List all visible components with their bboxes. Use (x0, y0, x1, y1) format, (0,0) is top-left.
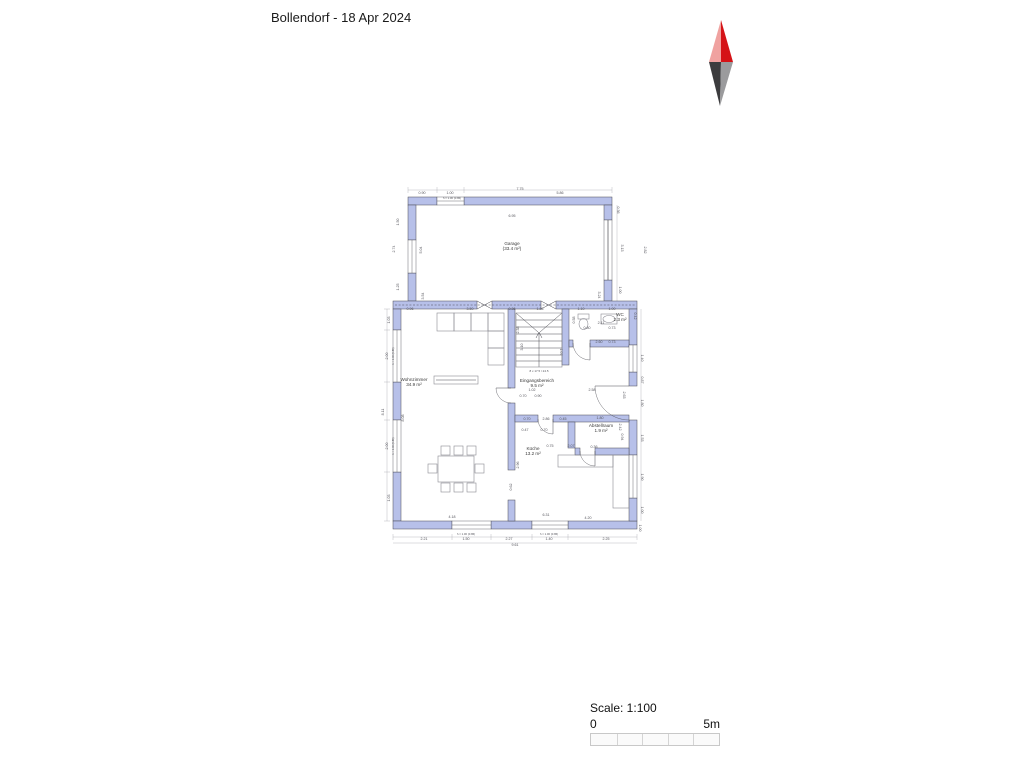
dimension-label: 0.47 (522, 428, 529, 432)
north-arrow-nw-blade (709, 20, 721, 62)
furniture (467, 483, 476, 492)
scale-start: 0 (590, 717, 597, 731)
floor-plan: Garage(33.4 m²)Wohnzimmer34.9 m²Eingangs… (0, 0, 1024, 768)
wall (464, 197, 612, 205)
wall (408, 197, 437, 205)
plan-line (540, 313, 562, 332)
plan-line (539, 332, 542, 338)
scale-numbers: 0 5m (590, 717, 720, 731)
furniture (441, 446, 450, 455)
dimension-label: 0.36 (591, 445, 598, 449)
dimension-label: 2.63 (622, 392, 626, 399)
dimension-label: 1.80 (597, 416, 604, 420)
dimension-label: 6.31 (543, 513, 550, 517)
scale-end: 5m (703, 717, 720, 731)
dimension-label: 1.90 (640, 474, 644, 481)
dimension-label: 1.25 (396, 284, 400, 291)
dimension-label: 2.00 (385, 353, 389, 360)
dimension-label: 0.94 (620, 434, 624, 441)
dimension-label: 9.61 (512, 543, 519, 547)
dimension-label: 5.04 (419, 247, 423, 254)
door-swing-arc (496, 388, 511, 403)
dimension-label: 8.11 (381, 409, 385, 416)
dimension-label: 0.96 (407, 307, 414, 311)
dimension-label: 2.21 (421, 537, 428, 541)
dimension-label: 2.60 (596, 340, 603, 344)
dimension-label: 2.58 (589, 388, 596, 392)
wall (408, 205, 416, 240)
scale-bar: Scale: 1:100 0 5m (590, 701, 720, 746)
dimension-label: 0.70 (541, 428, 548, 432)
furniture (475, 464, 484, 473)
room-label: Wohnzimmer34.9 m² (401, 377, 428, 387)
dimension-label: 2.38 (516, 327, 520, 334)
dimension-label: 1.00 (618, 287, 622, 294)
dimension-label: 1.00 (609, 307, 616, 311)
wall (604, 205, 612, 220)
dimension-label: 1.80 (640, 400, 644, 407)
dimension-label: 1.86 (537, 307, 544, 311)
dimension-label: 3.24 (597, 292, 601, 299)
wall (569, 340, 573, 347)
dimension-label: 0.36 (616, 207, 620, 214)
dimension-label: 0.58 (572, 317, 576, 324)
dimension-label: 3.50 (467, 307, 474, 311)
wall (408, 273, 416, 301)
wall (575, 448, 580, 455)
furniture (454, 446, 463, 455)
dimension-label: 0.36 (509, 307, 516, 311)
wall (568, 521, 637, 529)
furniture (428, 464, 437, 473)
furniture (454, 313, 471, 331)
scale-label: Scale: 1:100 (590, 701, 720, 715)
dimension-label: 1.03 (387, 317, 391, 324)
dimension-label: 0.90 (535, 394, 542, 398)
dimension-label: 7.75 (517, 187, 524, 191)
wall (595, 448, 629, 455)
furniture (613, 455, 629, 508)
furniture (441, 483, 450, 492)
dimension-label: 6.95 (509, 214, 516, 218)
wall (393, 521, 452, 529)
dimension-label: 3.10 (520, 344, 524, 351)
room-label: Garage(33.4 m²) (503, 241, 522, 251)
dimension-label: 2.42 (618, 424, 622, 431)
dimension-label: 1.03 (387, 495, 391, 502)
dimension-label: 1.00 (447, 191, 454, 195)
furniture (471, 313, 488, 331)
room-label: Abstellraum1.9 m² (589, 423, 613, 433)
dimension-label: 0.73 (609, 326, 616, 330)
dimension-label: 0.70 (524, 417, 531, 421)
dimension-label: h = 1.00 (0.86) (391, 347, 395, 364)
wall (393, 309, 401, 330)
dimension-label: h = 1.00 (0.86) (391, 437, 395, 454)
room-label: WC2.3 m² (613, 312, 626, 322)
dimension-label: 1.53 (640, 435, 644, 442)
dimension-label: 0.45 (560, 417, 567, 421)
dimension-label: 0.70 (520, 394, 527, 398)
dimension-label: 0.90 (419, 191, 426, 195)
wall (491, 521, 532, 529)
ruler-tick (693, 734, 694, 745)
dimension-label: 5.86 (557, 191, 564, 195)
dimension-label: 1.02 (529, 388, 536, 392)
dimension-label: 1.00 (638, 525, 642, 532)
wall (629, 372, 637, 386)
wall (562, 309, 569, 365)
dimension-label: 0.75 (547, 444, 554, 448)
dimension-label: 0.80 (584, 326, 591, 330)
dimension-label: 2.11 (598, 321, 605, 325)
ruler-tick (668, 734, 669, 745)
furniture (454, 483, 463, 492)
dimension-label: 4.18 (449, 515, 456, 519)
dimension-label: 1.00 (640, 507, 644, 514)
wall (393, 472, 401, 521)
dimension-label: 1.10 (578, 307, 585, 311)
door-swing-arc (580, 451, 595, 466)
dimension-label: 1.50 (396, 219, 400, 226)
wall (629, 420, 637, 455)
dimension-label: 2.07 (568, 444, 575, 448)
furniture (437, 313, 454, 331)
dimension-label: 2.74 (392, 246, 396, 253)
wall (508, 309, 515, 388)
dimension-label: 2.00 (385, 443, 389, 450)
dimension-label: 3.54 (421, 293, 425, 300)
ruler-tick (642, 734, 643, 745)
dimension-label: 1.40 (640, 355, 644, 362)
room-label: Eingangsbereich9.5 m² (520, 378, 555, 388)
dimension-label: 8.08 (401, 415, 405, 422)
dimension-label: 0.73 (609, 340, 616, 344)
plan-line (536, 332, 539, 338)
furniture (558, 455, 613, 467)
dimension-label: h = 1.00 (0.86) (540, 532, 558, 536)
dimension-label: 0.42 (633, 313, 637, 320)
dimension-label: 1.40 (546, 537, 553, 541)
wall (604, 280, 612, 301)
dimension-label: 1.50 (463, 537, 470, 541)
dimension-label: 2.27 (506, 537, 513, 541)
dimension-label: 8 x 17.5 / 24.5 (529, 369, 548, 373)
dimension-label: 0.62 (509, 484, 513, 491)
wall (508, 403, 515, 470)
furniture (467, 446, 476, 455)
dimension-label: 0.87 (640, 377, 644, 384)
wall (393, 382, 401, 420)
wall (508, 500, 515, 521)
dimension-label: h = 1.00 (0.86) (457, 532, 475, 536)
dimension-label: 4.20 (585, 516, 592, 520)
dimension-label: h = 1.00 (0.86) (443, 196, 461, 200)
furniture (488, 348, 504, 365)
ruler-tick (617, 734, 618, 745)
furniture (488, 313, 504, 331)
dimension-label: 2.86 (543, 417, 550, 421)
dimension-label: 2.82 (643, 247, 647, 254)
door-swing-arc (573, 343, 590, 360)
dimension-label: 1.07 (559, 349, 563, 356)
dimension-label: 2.96 (516, 462, 520, 469)
north-arrow-sw-blade (709, 62, 721, 106)
scale-ruler (590, 733, 720, 746)
furniture (488, 331, 504, 348)
room-label: Küche13.2 m² (525, 446, 541, 456)
wall (629, 498, 637, 521)
north-arrow-ne-blade (721, 20, 733, 62)
north-arrow-se-blade (720, 62, 733, 106)
floor-plan-page: Bollendorf - 18 Apr 2024 Garage(33.4 m²)… (0, 0, 1024, 768)
furniture (438, 456, 474, 482)
dimension-label: 3.13 (620, 245, 624, 252)
dimension-label: 2.25 (603, 537, 610, 541)
